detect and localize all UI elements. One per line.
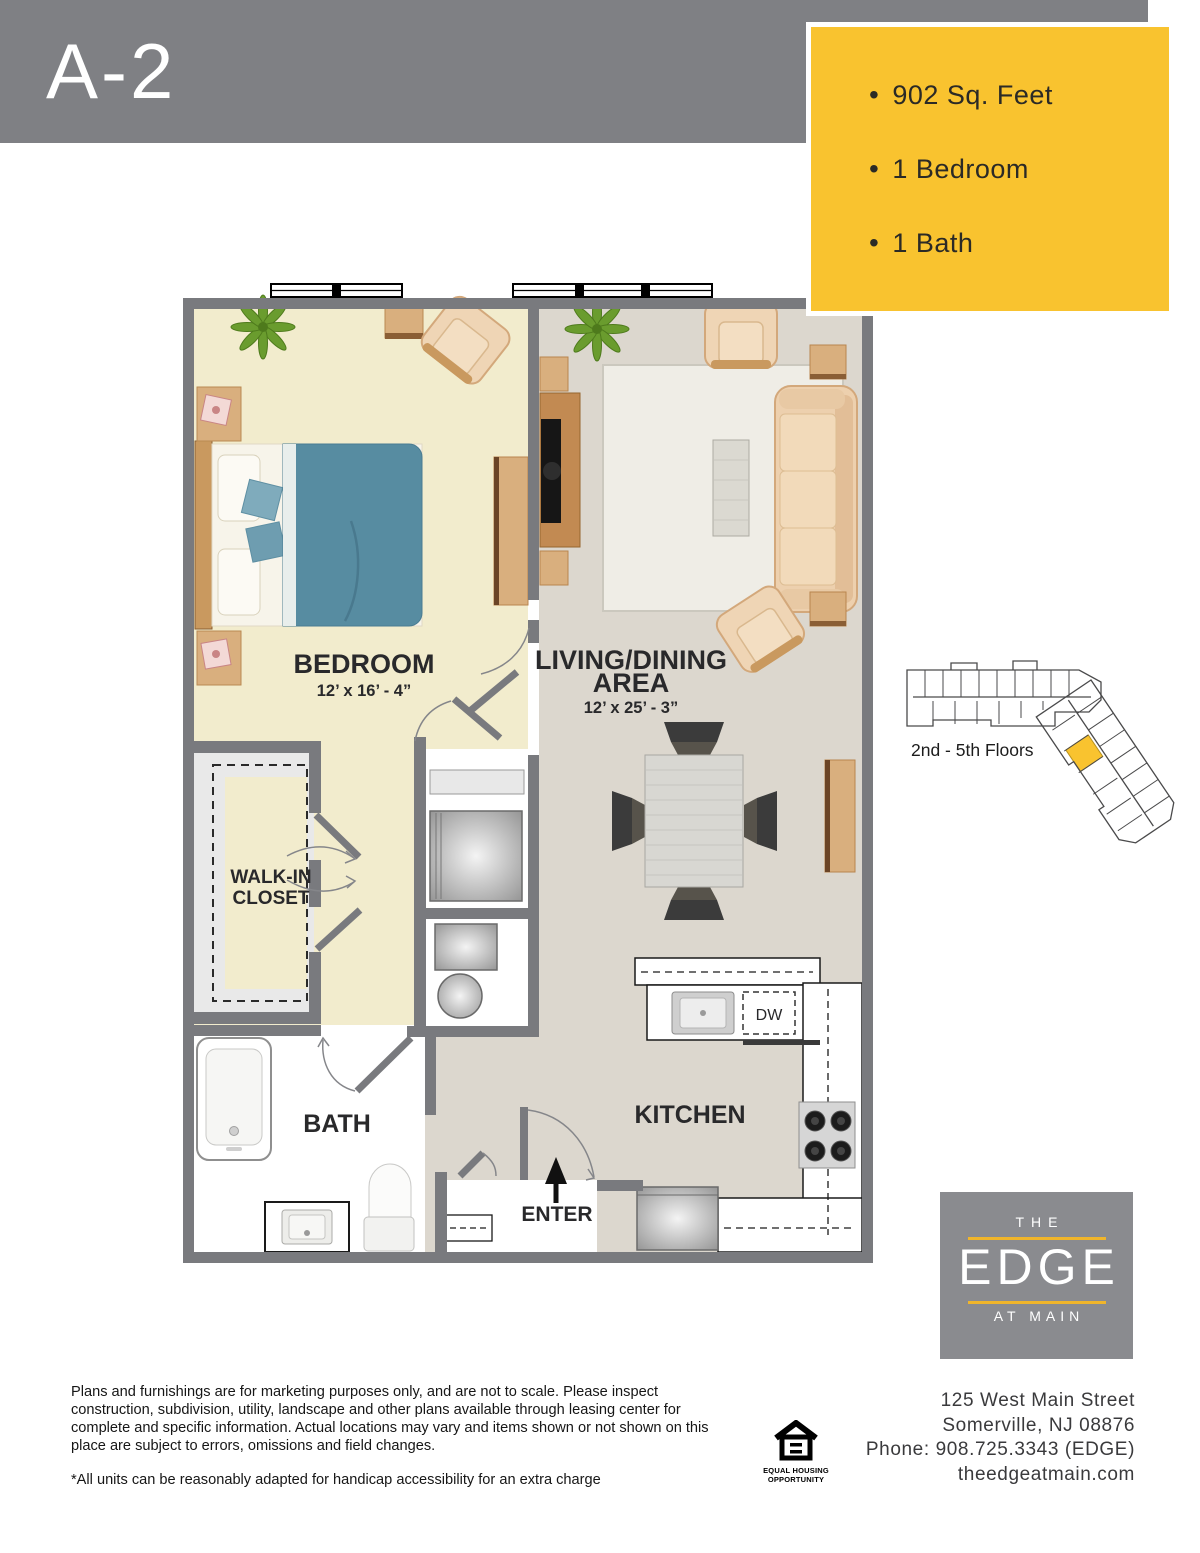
logo-edge: EDGE	[953, 1240, 1120, 1294]
specs-box: 902 Sq. Feet 1 Bedroom 1 Bath	[806, 22, 1174, 316]
bath-label: BATH	[303, 1110, 371, 1138]
spec-sqft-text: 902 Sq. Feet	[892, 80, 1053, 111]
spec-bedrooms: 1 Bedroom	[869, 153, 1169, 185]
highlighted-unit	[1066, 735, 1103, 772]
equal-housing-house-icon	[773, 1420, 819, 1462]
equal-housing-line2: OPPORTUNITY	[761, 1476, 831, 1485]
disclaimer-note: *All units can be reasonably adapted for…	[71, 1471, 726, 1489]
contact-website[interactable]: theedgeatmain.com	[858, 1463, 1135, 1488]
enter-label: ENTER	[521, 1203, 592, 1226]
living-label-2: AREA	[593, 668, 670, 698]
kitchen-sink	[672, 992, 734, 1034]
bathtub	[197, 1038, 271, 1160]
living-armchair-top	[705, 302, 777, 369]
spec-baths-text: 1 Bath	[892, 228, 973, 259]
spec-baths: 1 Bath	[869, 227, 1169, 259]
contact-city: Somerville, NJ 08876	[858, 1414, 1135, 1439]
bedroom-dims: 12’ x 16’ - 4”	[317, 682, 412, 700]
bath-vanity	[265, 1202, 349, 1252]
closet-label-2: CLOSET	[232, 888, 309, 909]
spec-sqft: 902 Sq. Feet	[869, 79, 1169, 111]
toilet	[364, 1164, 414, 1251]
brand-logo: THE EDGE AT MAIN	[940, 1192, 1133, 1359]
washer	[430, 811, 522, 901]
kitchen-label: KITCHEN	[634, 1101, 745, 1129]
dishwasher-label: DW	[756, 1007, 784, 1024]
disclaimer: Plans and furnishings are for marketing …	[71, 1383, 726, 1489]
bed	[195, 441, 422, 629]
dryer	[435, 924, 497, 970]
bedroom-label: BEDROOM	[294, 649, 435, 679]
living-dims: 12’ x 25’ - 3”	[584, 699, 679, 717]
windows	[271, 283, 712, 298]
closet-label-1: WALK-IN	[230, 867, 311, 888]
contact-phone: Phone: 908.725.3343 (EDGE)	[858, 1438, 1135, 1463]
spec-bedrooms-text: 1 Bedroom	[892, 154, 1029, 185]
water-heater	[438, 974, 482, 1018]
floor-plan-sheet: A-2	[0, 0, 1200, 1553]
key-plan-caption: 2nd - 5th Floors	[911, 740, 1034, 761]
logo-the: THE	[1009, 1214, 1065, 1230]
stove	[799, 1102, 855, 1168]
coffee-table	[713, 440, 749, 536]
logo-rule-bottom	[968, 1301, 1106, 1304]
unit-name: A-2	[46, 16, 176, 126]
equal-housing-logo: EQUAL HOUSING OPPORTUNITY	[761, 1420, 831, 1484]
disclaimer-body: Plans and furnishings are for marketing …	[71, 1383, 726, 1455]
logo-at-main: AT MAIN	[989, 1308, 1085, 1324]
refrigerator	[637, 1187, 718, 1250]
contact-block: 125 West Main Street Somerville, NJ 0887…	[858, 1389, 1135, 1487]
floor-plan-drawing: BEDROOM 12’ x 16’ - 4” LIVING/DINING ARE…	[183, 283, 873, 1263]
sofa	[775, 386, 857, 612]
contact-street: 125 West Main Street	[858, 1389, 1135, 1414]
